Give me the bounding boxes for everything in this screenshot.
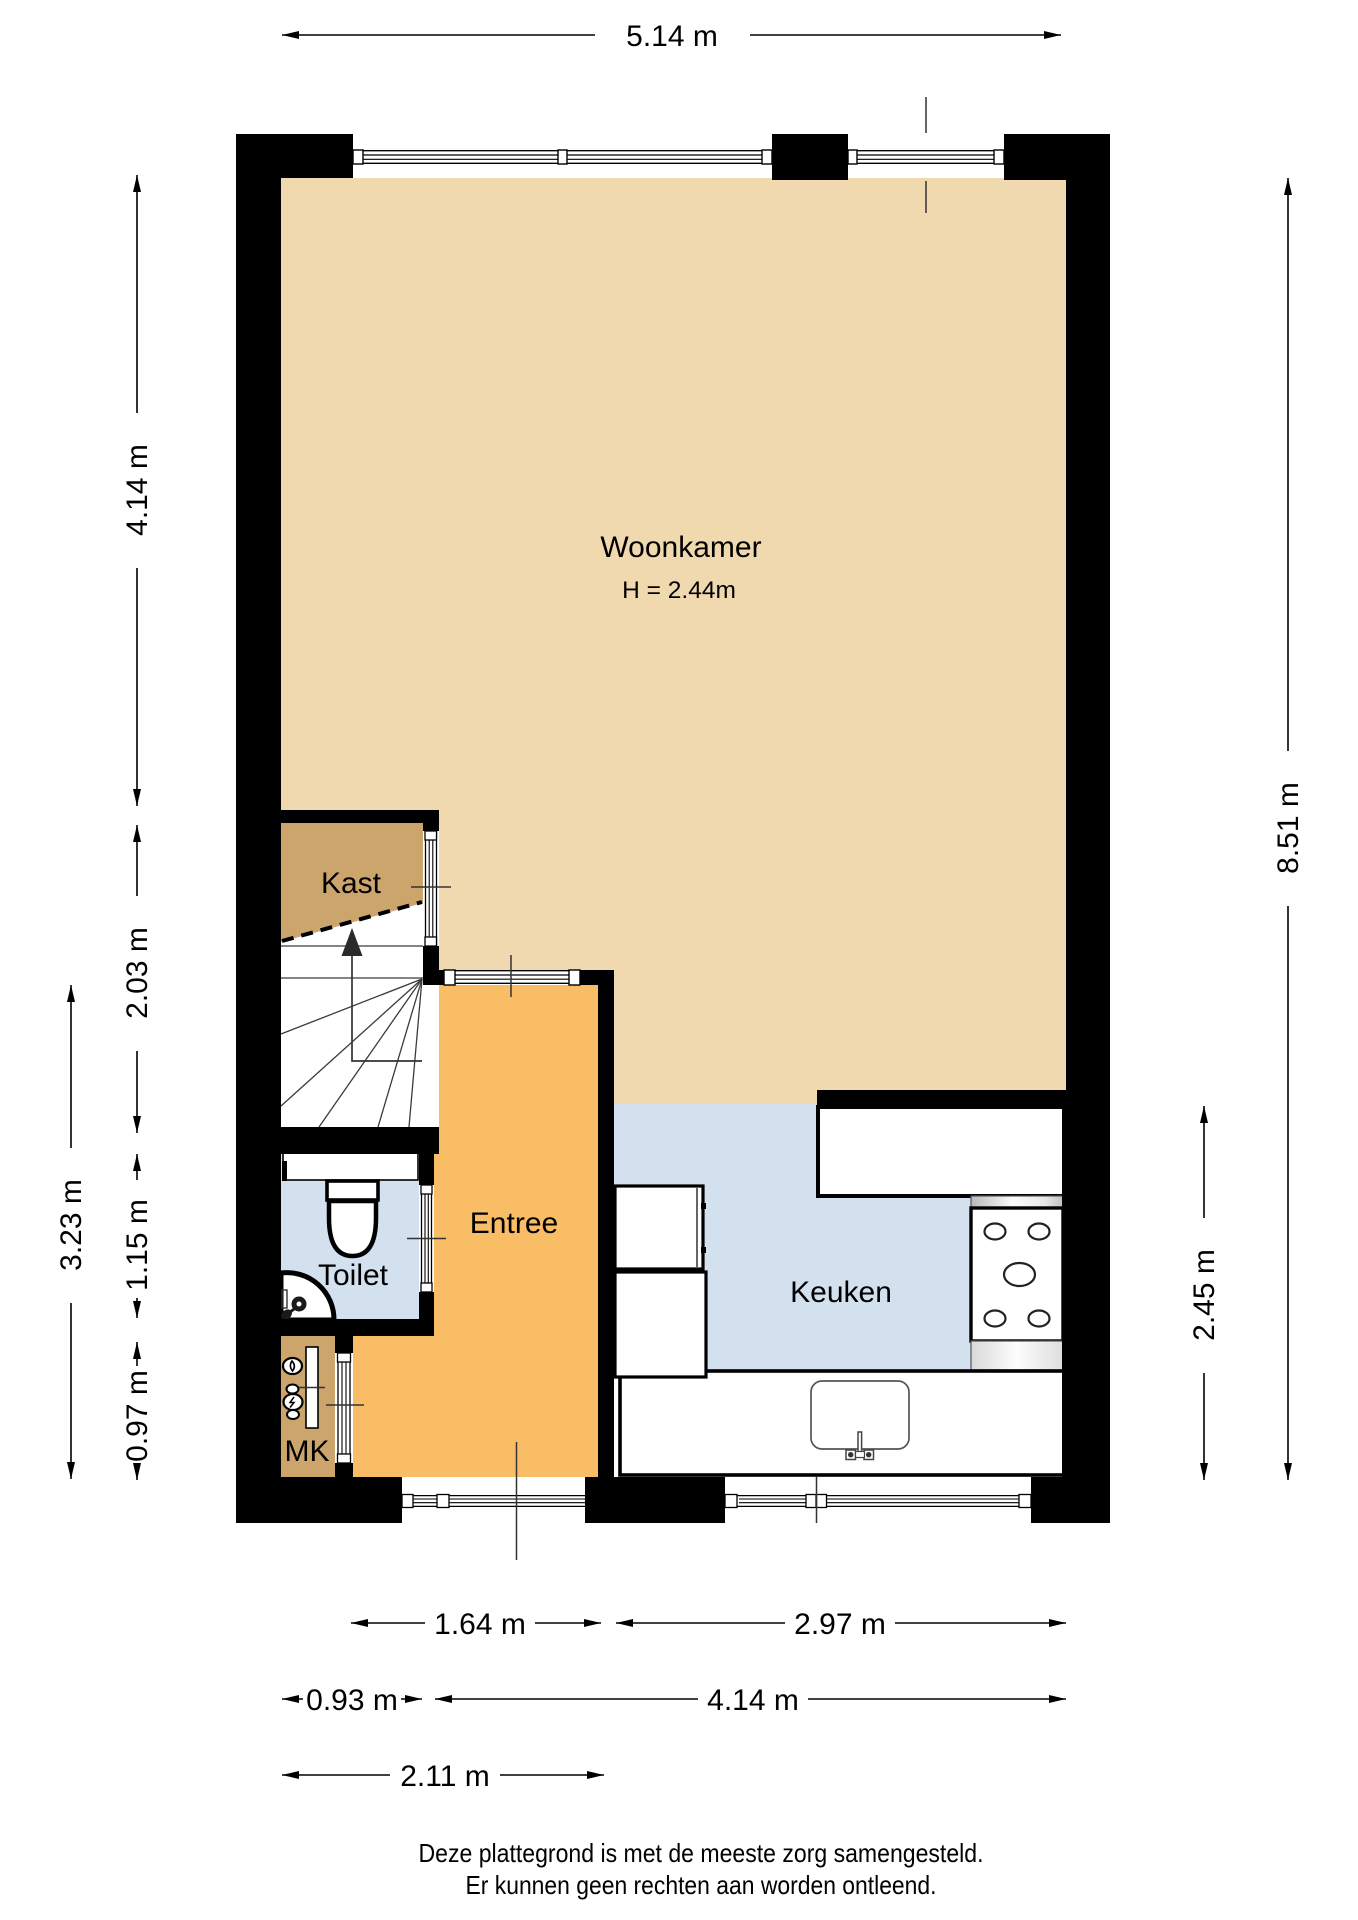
svg-text:Er kunnen geen rechten aan wor: Er kunnen geen rechten aan worden ontlee… (466, 1870, 937, 1900)
svg-text:Entree: Entree (470, 1207, 558, 1240)
svg-text:0.97 m: 0.97 m (121, 1370, 154, 1462)
svg-text:4.14 m: 4.14 m (707, 1684, 799, 1717)
svg-text:Deze plattegrond is met de mee: Deze plattegrond is met de meeste zorg s… (419, 1838, 984, 1868)
svg-text:3.23 m: 3.23 m (55, 1179, 88, 1271)
svg-text:0.93 m: 0.93 m (306, 1684, 398, 1717)
svg-text:MK: MK (285, 1435, 330, 1468)
svg-text:8.51 m: 8.51 m (1272, 782, 1305, 874)
svg-text:2.45 m: 2.45 m (1188, 1249, 1221, 1341)
svg-text:Keuken: Keuken (790, 1276, 892, 1309)
svg-text:2.97 m: 2.97 m (794, 1608, 886, 1641)
svg-text:1.64 m: 1.64 m (434, 1608, 526, 1641)
svg-text:4.14 m: 4.14 m (121, 444, 154, 536)
svg-text:1.15 m: 1.15 m (121, 1199, 154, 1291)
svg-text:2.03 m: 2.03 m (121, 927, 154, 1019)
svg-text:Toilet: Toilet (318, 1259, 389, 1292)
svg-text:H = 2.44m: H = 2.44m (622, 577, 736, 604)
svg-text:5.14 m: 5.14 m (626, 20, 718, 53)
svg-text:Woonkamer: Woonkamer (600, 531, 761, 564)
svg-text:2.11 m: 2.11 m (400, 1760, 490, 1793)
svg-text:Kast: Kast (321, 867, 382, 900)
